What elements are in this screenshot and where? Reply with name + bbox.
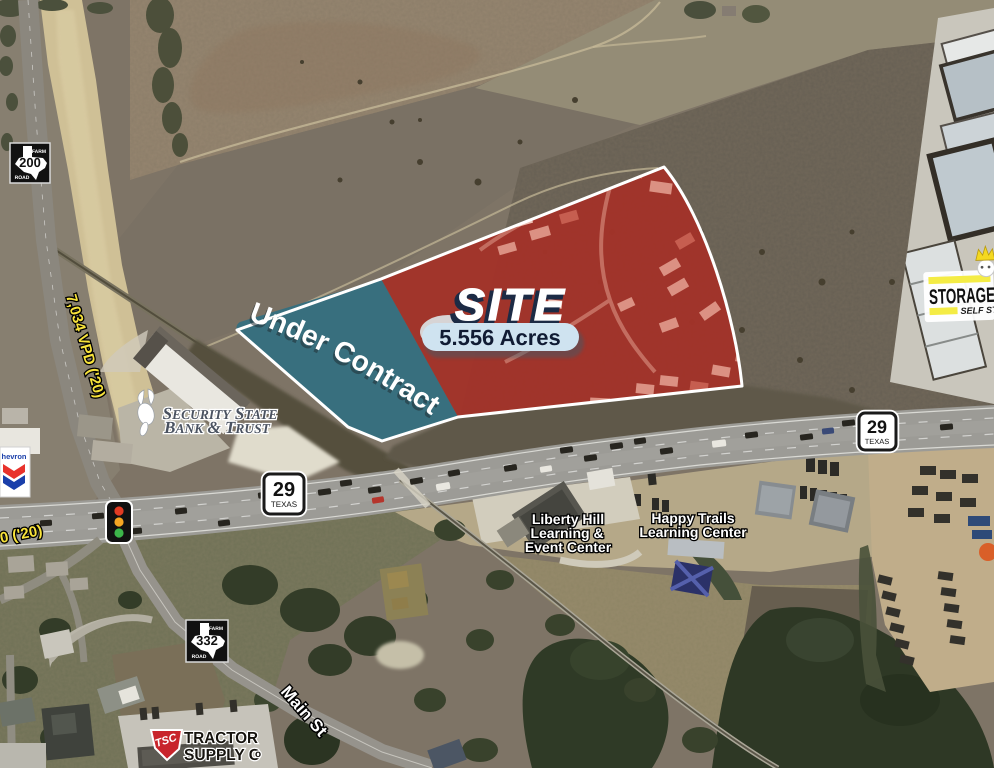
svg-text:29: 29 (867, 417, 887, 437)
svg-text:FARM: FARM (209, 626, 223, 632)
svg-text:TEXAS: TEXAS (865, 437, 890, 446)
svg-text:ROAD: ROAD (15, 175, 30, 181)
svg-text:5.556 Acres: 5.556 Acres (439, 325, 561, 350)
svg-text:SITE: SITE (455, 279, 567, 330)
svg-text:Learning Center: Learning Center (639, 524, 747, 540)
svg-text:332: 332 (196, 633, 218, 648)
svg-text:SUPPLY C: SUPPLY C (184, 747, 260, 764)
svg-text:SELF ST: SELF ST (960, 305, 994, 316)
svg-text:TRACTOR: TRACTOR (184, 730, 258, 747)
svg-text:Event Center: Event Center (525, 539, 612, 555)
svg-text:hevron: hevron (1, 452, 26, 461)
svg-text:o: o (255, 749, 261, 760)
svg-text:200: 200 (19, 155, 41, 170)
svg-text:TEXAS: TEXAS (271, 500, 297, 509)
svg-text:BANK & TRUST: BANK & TRUST (163, 418, 270, 437)
svg-text:ROAD: ROAD (192, 654, 207, 660)
svg-text:29: 29 (273, 479, 295, 501)
